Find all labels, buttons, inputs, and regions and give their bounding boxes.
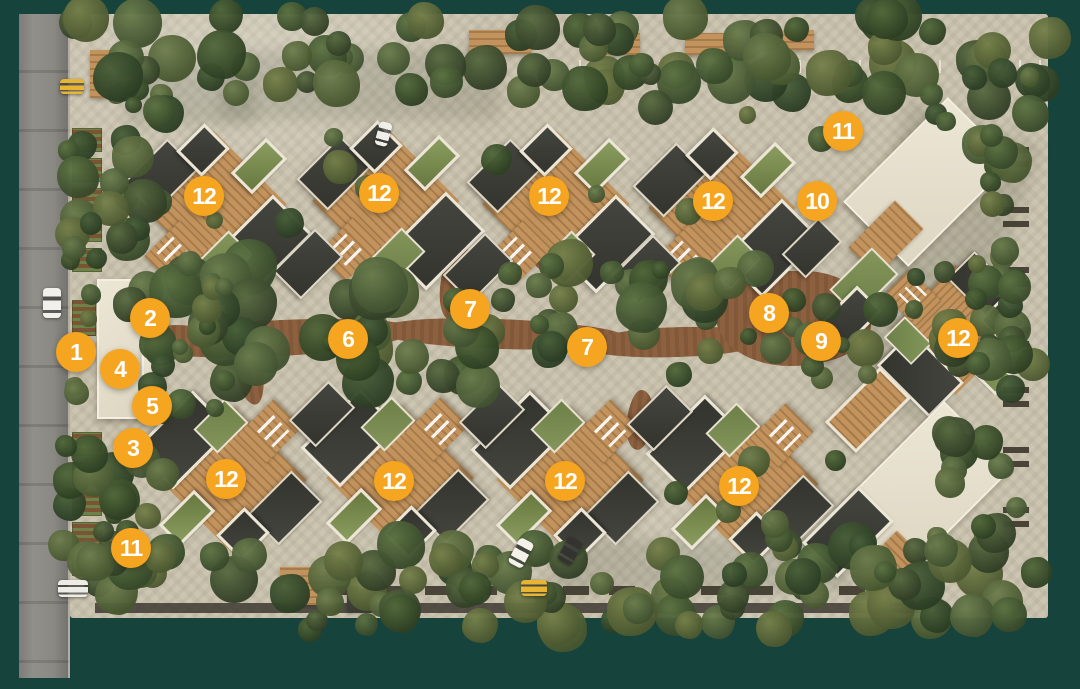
- tree: [652, 261, 670, 279]
- tree: [93, 52, 142, 101]
- tree: [515, 5, 560, 50]
- tree: [962, 65, 987, 90]
- tree: [206, 399, 224, 417]
- tree: [638, 90, 674, 126]
- tree: [991, 597, 1026, 632]
- tree: [355, 613, 378, 636]
- tree: [135, 503, 160, 528]
- tree: [399, 566, 427, 594]
- tree: [934, 417, 974, 457]
- tree: [313, 60, 360, 107]
- tree: [739, 106, 756, 123]
- tree: [971, 514, 996, 539]
- tree: [76, 543, 115, 582]
- map-marker-10[interactable]: 10: [797, 181, 837, 221]
- map-marker-12[interactable]: 12: [693, 181, 733, 221]
- map-marker-11[interactable]: 11: [111, 528, 151, 568]
- tree: [200, 542, 229, 571]
- vehicle: [58, 580, 88, 597]
- tree: [462, 608, 497, 643]
- tree: [316, 588, 344, 616]
- map-marker-3[interactable]: 3: [113, 428, 153, 468]
- tree: [86, 248, 107, 269]
- tree: [784, 17, 809, 42]
- tree: [80, 212, 102, 234]
- map-marker-12[interactable]: 12: [184, 176, 224, 216]
- tree: [172, 339, 188, 355]
- tree: [936, 112, 956, 132]
- tree: [101, 483, 137, 519]
- tree: [862, 71, 906, 115]
- tree: [263, 67, 298, 102]
- tree: [381, 594, 420, 633]
- parking-line: [939, 60, 941, 73]
- tree: [980, 191, 1005, 216]
- tree: [93, 521, 114, 542]
- tree: [491, 288, 515, 312]
- tree: [498, 262, 522, 286]
- tree: [55, 435, 77, 457]
- tree: [463, 45, 508, 90]
- tree: [275, 208, 304, 237]
- tree: [232, 538, 266, 572]
- tree: [867, 0, 908, 39]
- map-marker-8[interactable]: 8: [749, 293, 789, 333]
- vehicle: [521, 580, 547, 596]
- tree: [629, 53, 654, 78]
- tree: [530, 315, 549, 334]
- tree: [526, 273, 552, 299]
- tree: [761, 510, 789, 538]
- tree: [825, 450, 845, 470]
- tree: [846, 329, 884, 367]
- tree: [562, 66, 608, 112]
- tree: [456, 364, 500, 408]
- tree: [743, 33, 791, 81]
- site-plan-canvas: 1234567789101111121212121212121212: [0, 0, 1080, 689]
- tree: [1006, 497, 1027, 518]
- map-marker-12[interactable]: 12: [359, 173, 399, 213]
- tree: [125, 97, 141, 113]
- map-marker-12[interactable]: 12: [529, 176, 569, 216]
- tree: [481, 144, 512, 175]
- tree: [197, 30, 245, 78]
- tree: [1020, 67, 1039, 86]
- tree: [590, 572, 614, 596]
- tree: [1021, 557, 1052, 588]
- tree: [666, 362, 691, 387]
- tree: [64, 380, 89, 405]
- tree: [223, 80, 249, 106]
- map-marker-7[interactable]: 7: [450, 289, 490, 329]
- tree: [966, 352, 990, 376]
- map-marker-1[interactable]: 1: [56, 332, 96, 372]
- map-marker-4[interactable]: 4: [100, 349, 140, 389]
- tree: [352, 257, 408, 313]
- tree: [660, 555, 704, 599]
- tree: [965, 288, 987, 310]
- parking-post: [1003, 447, 1029, 453]
- tree: [151, 354, 174, 377]
- tree: [430, 65, 463, 98]
- tree: [324, 128, 343, 147]
- tree: [407, 2, 444, 39]
- tree: [812, 293, 841, 322]
- tree: [81, 284, 102, 305]
- tree: [71, 435, 109, 473]
- map-marker-12[interactable]: 12: [374, 461, 414, 501]
- map-marker-7[interactable]: 7: [567, 327, 607, 367]
- tree: [143, 95, 175, 127]
- tree: [395, 73, 428, 106]
- tree: [326, 31, 351, 56]
- tree: [1029, 17, 1071, 59]
- map-marker-11[interactable]: 11: [823, 111, 863, 151]
- map-marker-12[interactable]: 12: [206, 459, 246, 499]
- tree: [697, 338, 723, 364]
- tree: [323, 150, 357, 184]
- tree: [537, 331, 569, 363]
- tree: [215, 278, 233, 296]
- tree: [696, 48, 732, 84]
- map-marker-9[interactable]: 9: [801, 321, 841, 361]
- tree: [713, 267, 745, 299]
- tree: [950, 594, 994, 638]
- tree: [214, 370, 235, 391]
- tree: [234, 342, 278, 386]
- tree: [282, 41, 312, 71]
- tree: [377, 521, 425, 569]
- tree: [760, 332, 791, 363]
- tree: [874, 561, 896, 583]
- tree: [57, 156, 99, 198]
- tree: [106, 222, 138, 254]
- vehicle: [60, 79, 84, 94]
- map-marker-12[interactable]: 12: [938, 318, 978, 358]
- tree: [177, 251, 202, 276]
- map-marker-12[interactable]: 12: [719, 466, 759, 506]
- tree: [324, 541, 364, 581]
- tree: [980, 172, 1000, 192]
- tree: [80, 310, 98, 328]
- map-marker-6[interactable]: 6: [328, 319, 368, 359]
- map-marker-2[interactable]: 2: [130, 298, 170, 338]
- tree: [988, 58, 1018, 88]
- map-marker-5[interactable]: 5: [132, 386, 172, 426]
- tree: [395, 339, 429, 373]
- tree: [905, 300, 924, 319]
- tree: [756, 611, 792, 647]
- tree: [907, 268, 925, 286]
- tree: [429, 543, 463, 577]
- tree: [806, 50, 852, 96]
- map-marker-12[interactable]: 12: [545, 461, 585, 501]
- tree: [980, 124, 1003, 147]
- tree: [935, 467, 965, 497]
- vehicle: [43, 288, 61, 318]
- tree: [583, 13, 616, 46]
- tree: [426, 359, 460, 393]
- tree: [785, 558, 821, 594]
- tree: [998, 270, 1031, 303]
- tree: [991, 237, 1019, 265]
- tree: [270, 574, 310, 614]
- tree: [616, 282, 667, 333]
- tree: [1012, 95, 1049, 132]
- tree: [517, 53, 551, 87]
- tree: [600, 261, 624, 285]
- tree: [675, 611, 703, 639]
